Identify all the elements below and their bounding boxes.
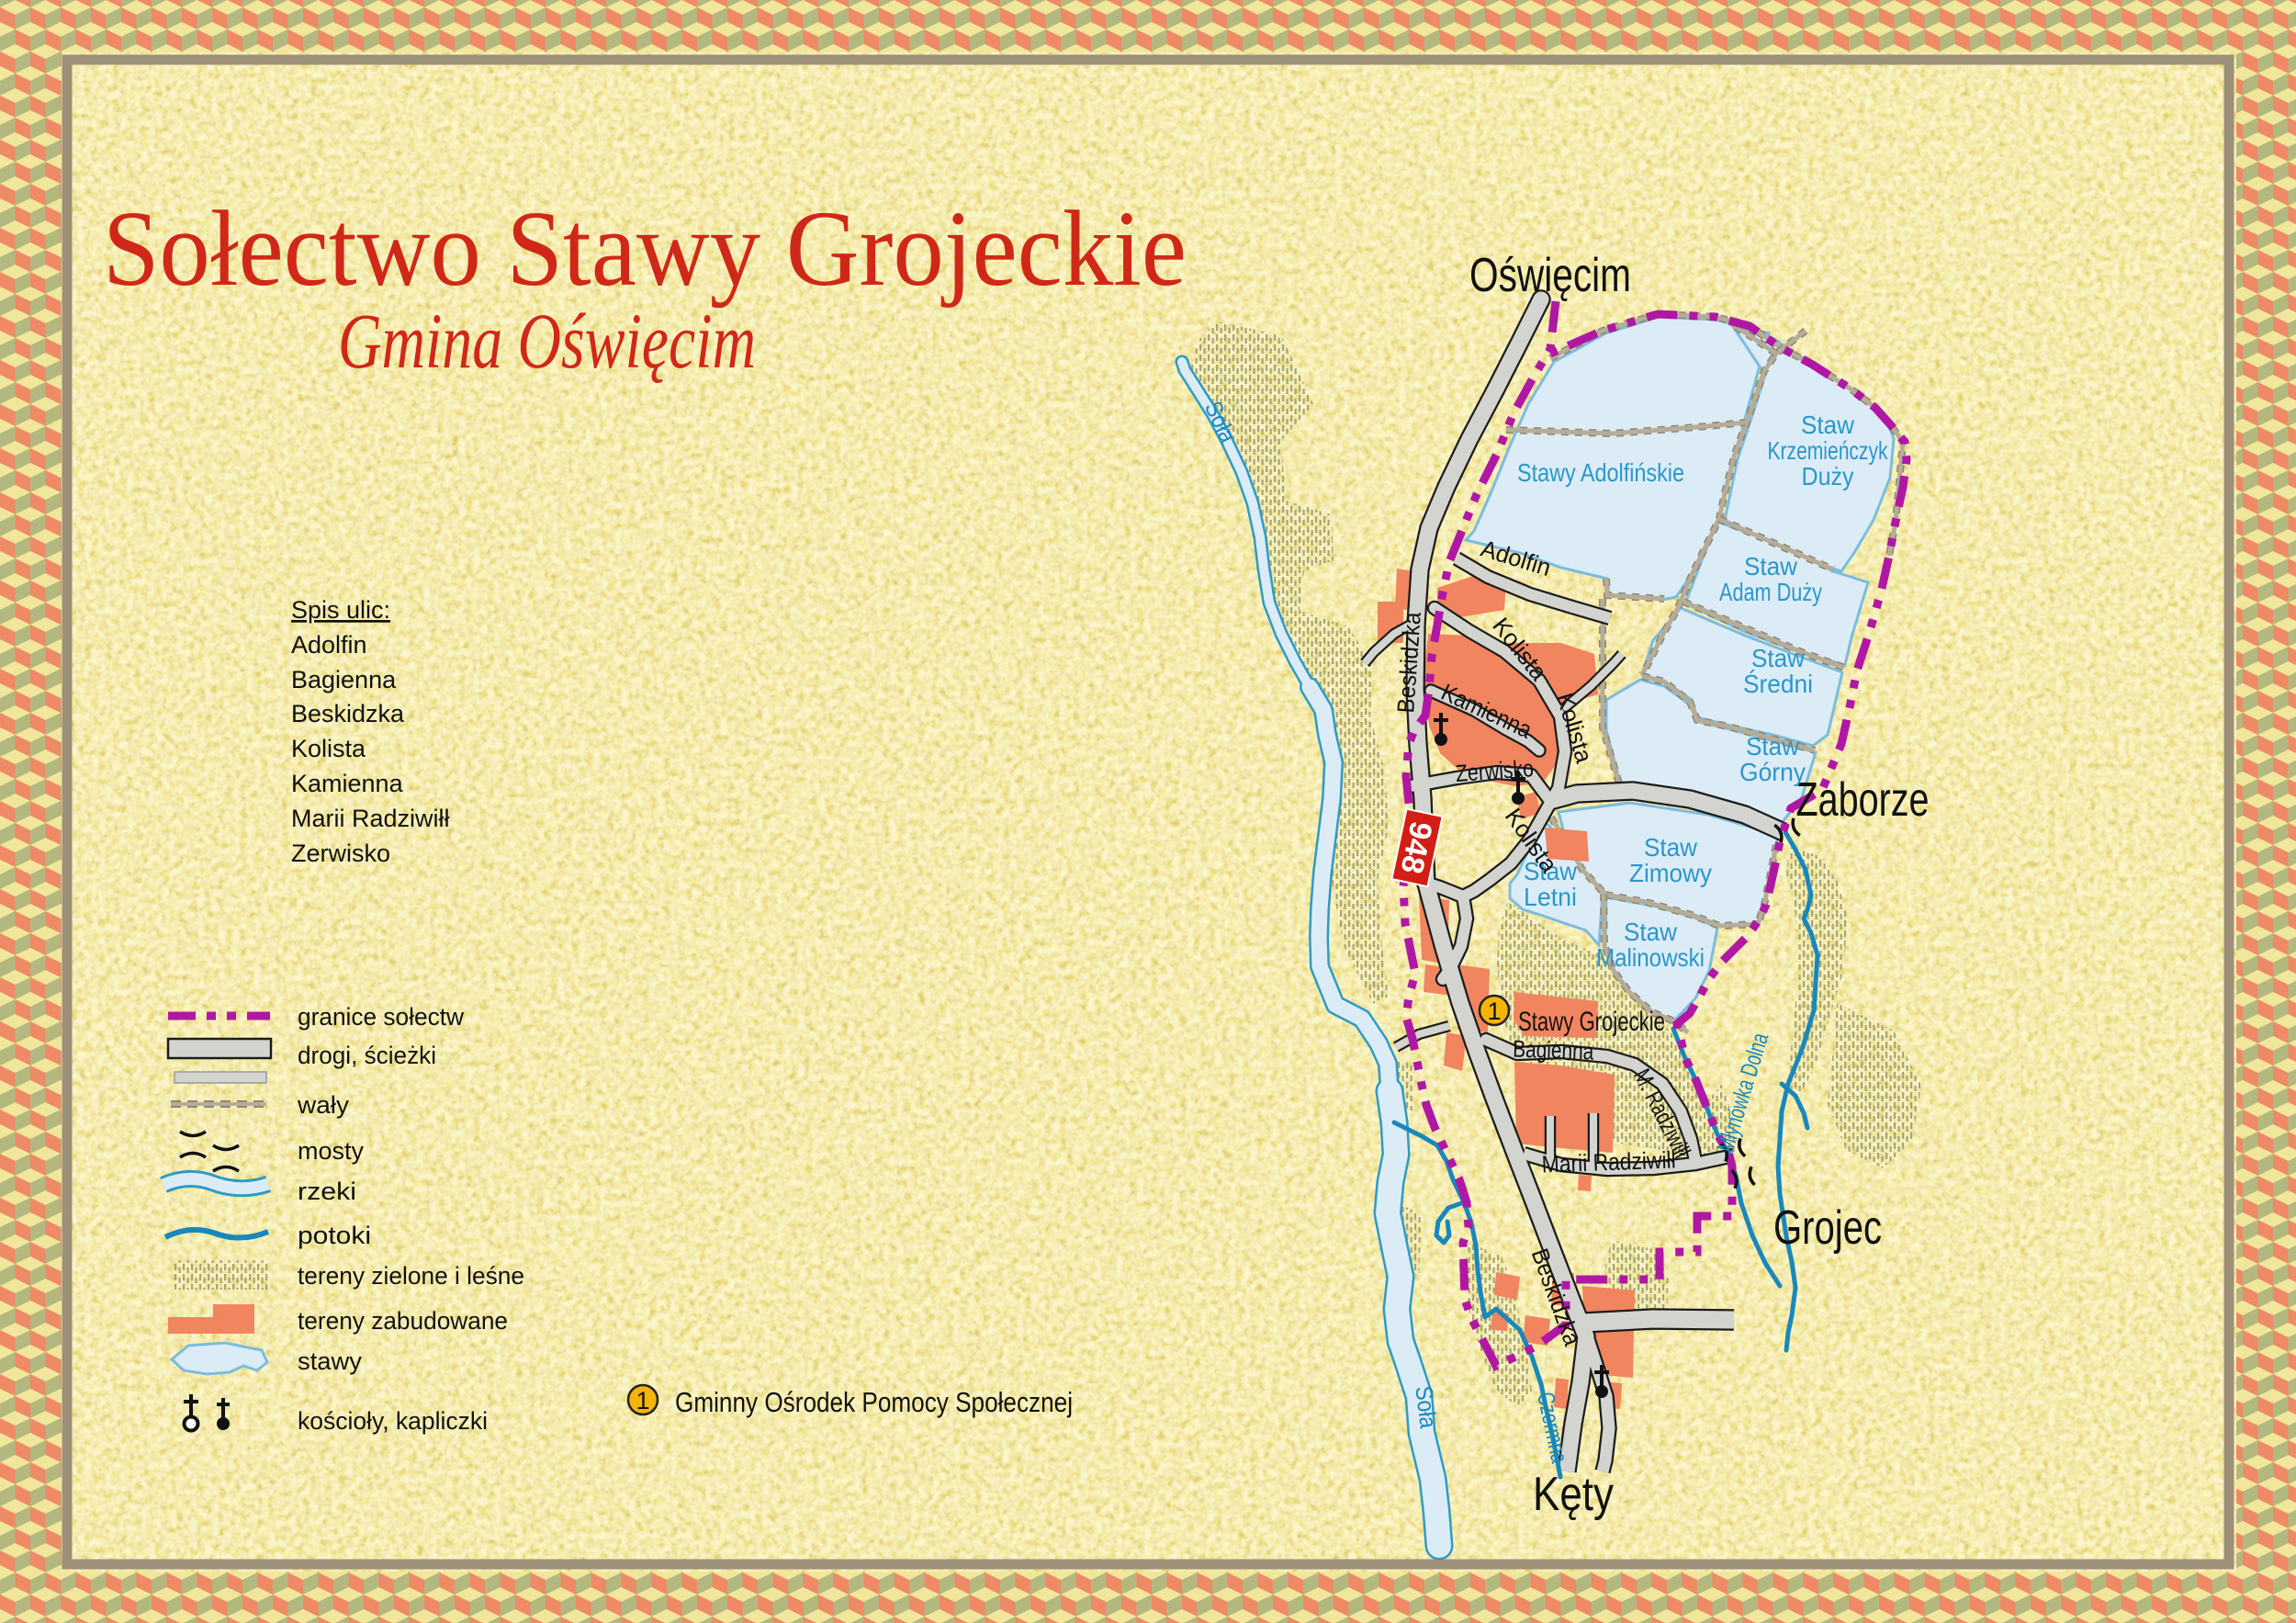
- svg-text:tereny zielone i leśne: tereny zielone i leśne: [298, 1262, 524, 1290]
- svg-text:Letni: Letni: [1524, 883, 1577, 911]
- svg-text:drogi, ścieżki: drogi, ścieżki: [298, 1042, 436, 1069]
- svg-text:Zaborze: Zaborze: [1796, 773, 1930, 827]
- svg-text:Stawy Adolfińskie: Stawy Adolfińskie: [1517, 458, 1684, 487]
- svg-text:kościoły, kapliczki: kościoły, kapliczki: [298, 1407, 488, 1435]
- svg-text:Gmina Oświęcim: Gmina Oświęcim: [338, 297, 756, 385]
- svg-text:Staw: Staw: [1644, 833, 1698, 862]
- svg-text:Staw: Staw: [1624, 918, 1678, 946]
- svg-text:Duży: Duży: [1802, 462, 1854, 490]
- svg-text:Adolfin: Adolfin: [291, 631, 367, 659]
- svg-text:Staw: Staw: [1751, 644, 1806, 672]
- svg-text:Malinowski: Malinowski: [1596, 943, 1705, 972]
- svg-text:1: 1: [636, 1387, 649, 1414]
- svg-text:stawy: stawy: [298, 1347, 362, 1375]
- svg-text:mosty: mosty: [298, 1137, 364, 1165]
- svg-text:Oświęcim: Oświęcim: [1469, 249, 1631, 302]
- svg-text:Marii Radziwiłł: Marii Radziwiłł: [1541, 1145, 1676, 1178]
- svg-text:Stawy Grojeckie: Stawy Grojeckie: [1518, 1007, 1665, 1037]
- svg-text:Górny: Górny: [1739, 758, 1806, 786]
- svg-text:Beskidzka: Beskidzka: [291, 700, 405, 727]
- svg-text:Staw: Staw: [1801, 411, 1855, 439]
- svg-text:1: 1: [1487, 997, 1501, 1025]
- svg-text:Staw: Staw: [1744, 552, 1798, 580]
- svg-text:Kęty: Kęty: [1533, 1468, 1614, 1521]
- svg-text:potoki: potoki: [298, 1222, 371, 1249]
- svg-text:Spis ulic:: Spis ulic:: [291, 596, 390, 624]
- svg-text:Krzemieńczyk: Krzemieńczyk: [1768, 436, 1889, 465]
- svg-text:Kolista: Kolista: [291, 735, 366, 762]
- svg-text:Sołectwo Stawy Grojeckie: Sołectwo Stawy Grojeckie: [103, 188, 1187, 309]
- svg-text:tereny zabudowane: tereny zabudowane: [298, 1307, 508, 1335]
- svg-text:Średni: Średni: [1743, 669, 1813, 698]
- svg-text:wały: wały: [297, 1091, 350, 1119]
- svg-text:Gminny Ośrodek Pomocy Społeczn: Gminny Ośrodek Pomocy Społecznej: [675, 1386, 1073, 1418]
- svg-text:Zimowy: Zimowy: [1629, 859, 1712, 887]
- svg-text:Bagienna: Bagienna: [291, 666, 397, 693]
- svg-text:Grojec: Grojec: [1773, 1201, 1882, 1255]
- svg-text:Adam Duży: Adam Duży: [1719, 578, 1822, 606]
- svg-text:granice sołectw: granice sołectw: [298, 1003, 464, 1031]
- svg-text:Kamienna: Kamienna: [291, 770, 404, 797]
- svg-text:rzeki: rzeki: [298, 1178, 356, 1205]
- svg-text:Staw: Staw: [1746, 732, 1800, 761]
- svg-text:Soła: Soła: [1410, 1384, 1442, 1430]
- svg-text:Zerwisko: Zerwisko: [291, 840, 390, 867]
- svg-text:Bagienna: Bagienna: [1513, 1034, 1594, 1065]
- svg-text:Zerwisko: Zerwisko: [1455, 754, 1535, 787]
- svg-text:Marii Radziwiłł: Marii Radziwiłł: [291, 805, 450, 832]
